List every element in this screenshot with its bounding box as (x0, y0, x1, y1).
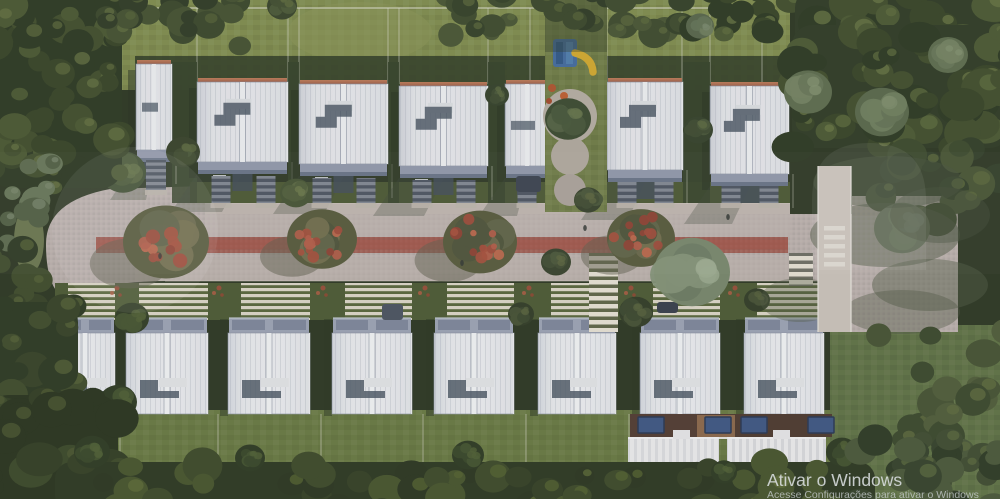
svg-text:Ativar o Windows: Ativar o Windows (767, 470, 902, 490)
svg-text:Acesse Configurações para ativ: Acesse Configurações para ativar o Windo… (767, 489, 979, 499)
